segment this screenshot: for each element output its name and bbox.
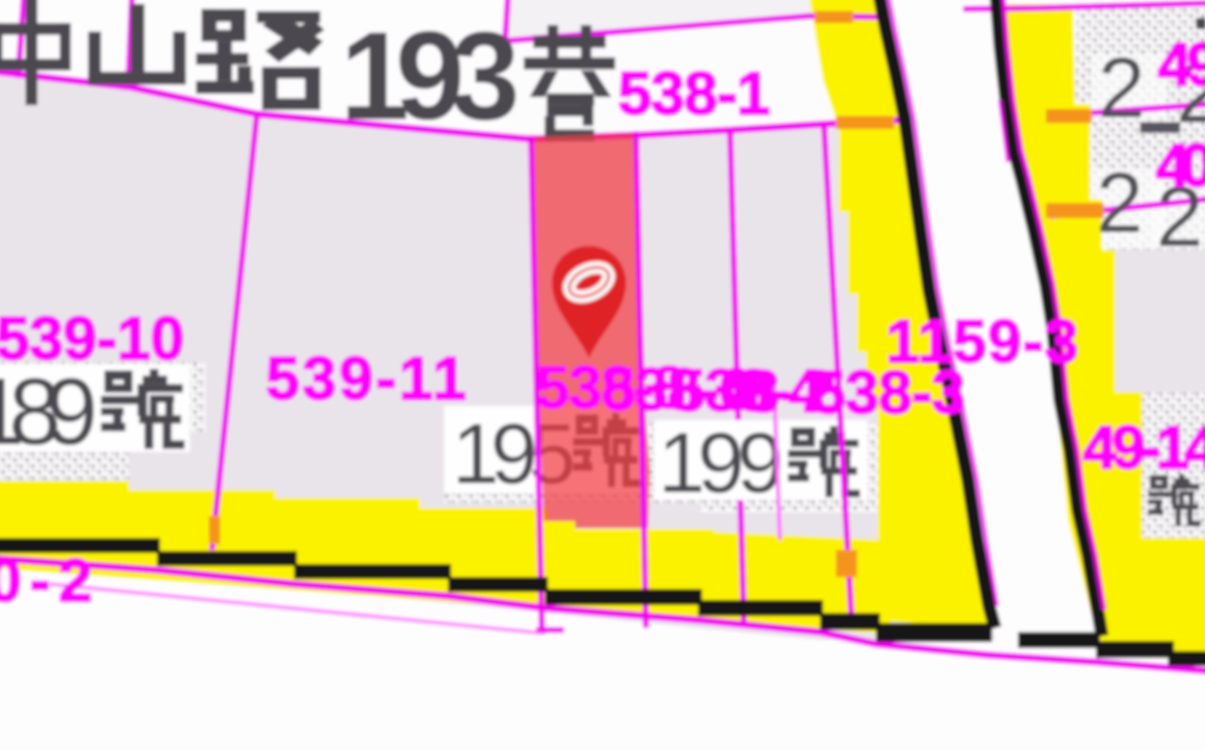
svg-text:199: 199: [658, 416, 784, 511]
svg-text:2: 2: [1098, 41, 1145, 136]
svg-text:0-2: 0-2: [0, 547, 92, 614]
svg-text:193: 193: [340, 7, 520, 146]
svg-text:49-14: 49-14: [1083, 414, 1205, 481]
svg-text:538-1: 538-1: [618, 60, 770, 127]
svg-text:40: 40: [1156, 132, 1205, 199]
svg-text:1159-3: 1159-3: [886, 308, 1078, 375]
svg-text:539-10: 539-10: [0, 305, 184, 372]
svg-text:189: 189: [0, 359, 98, 465]
svg-text:539-11: 539-11: [266, 345, 466, 412]
svg-text:49: 49: [1158, 31, 1205, 98]
